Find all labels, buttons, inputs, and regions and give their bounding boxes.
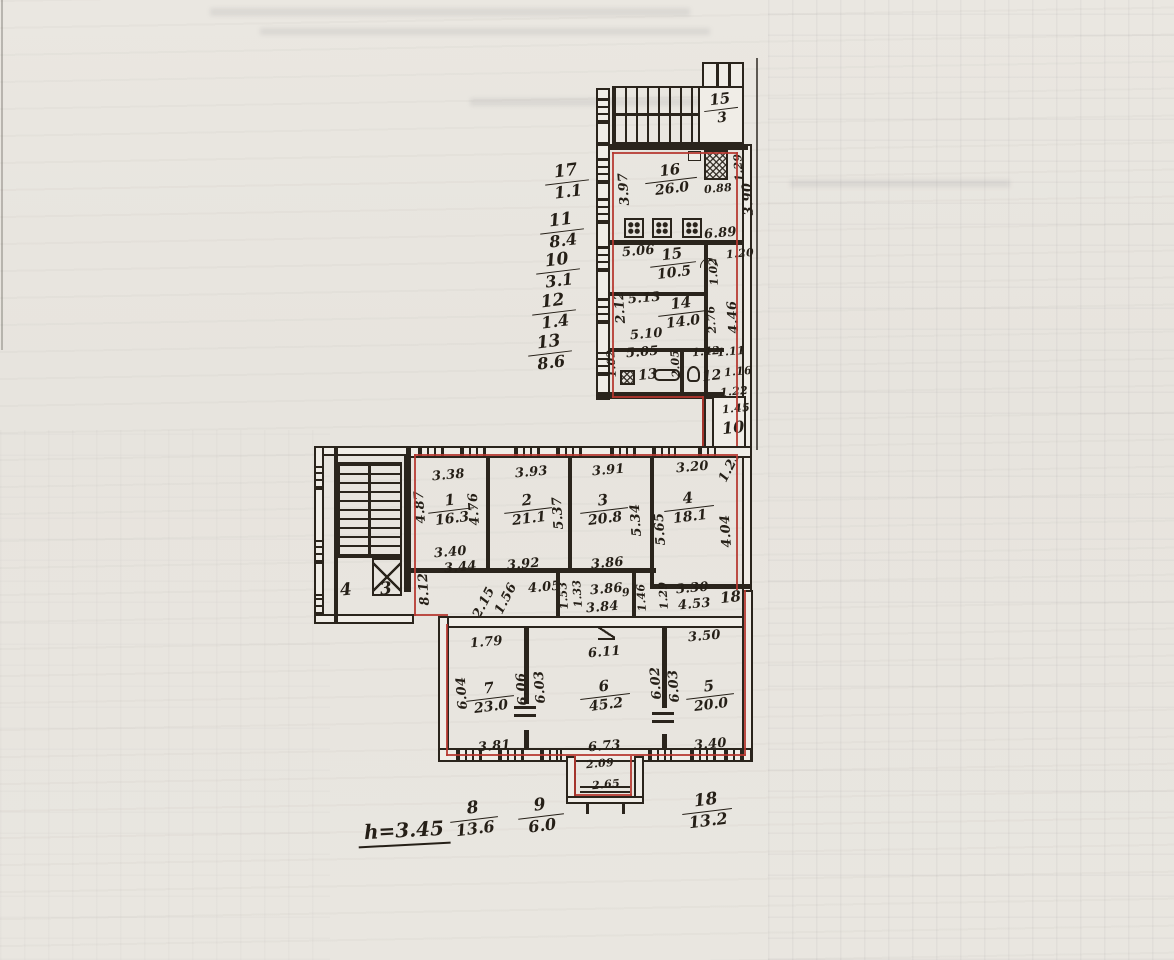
scanned-floor-plan-page: 15 3 16 26.0 3.97 3.90 0.88 1.29 6.89 5.… (0, 0, 1174, 960)
legend-item: 13 8.6 (526, 331, 574, 374)
legend-item: 12 1.4 (530, 290, 578, 333)
dim-label: 5.05 (625, 344, 659, 362)
room-6-label: 6 45.2 (578, 676, 632, 715)
legend-val: 8.6 (528, 351, 574, 374)
dim-label: 3.30 (675, 580, 709, 598)
height-note: h=3.45 (357, 816, 450, 849)
wall (568, 458, 572, 572)
dim-label: 3.91 (591, 462, 625, 480)
paper-texture (0, 0, 1174, 960)
kitchen-stove (624, 218, 644, 238)
ghost-ruling-left (0, 430, 330, 960)
dim-label: 2.76 (704, 305, 719, 334)
wall (486, 458, 490, 572)
window (596, 246, 610, 272)
red-boundary (612, 152, 738, 154)
dim-label: 4.46 (725, 300, 742, 334)
dim-label: 1.29 (731, 153, 746, 182)
room-3-label: 3 20.8 (578, 490, 630, 529)
ghost-ruling-right (768, 0, 1174, 960)
dim-label: 4.76 (466, 492, 483, 526)
dim-label: 1.56 (492, 581, 520, 617)
legend-val: 13.2 (682, 809, 734, 833)
legend-item: 17 1.1 (543, 160, 591, 203)
ghost-text-smudge (790, 180, 1010, 187)
dim-label: 5.65 (652, 512, 669, 546)
dim-label: 3.90 (740, 182, 757, 216)
dim-label: 8.12 (416, 572, 433, 606)
window (418, 446, 444, 458)
porch-step (622, 804, 625, 814)
legend-item: 10 3.1 (534, 249, 582, 292)
room-2-label: 2 21.1 (502, 490, 554, 529)
red-boundary (702, 396, 704, 452)
window (556, 446, 582, 458)
room-14-label: 14 14.0 (656, 293, 708, 332)
window (596, 198, 610, 224)
dim-label: 3.20 (675, 459, 709, 477)
dim-label: 2.12 (612, 290, 629, 324)
door-leaf (514, 714, 536, 717)
legend-val: 1.1 (545, 180, 591, 203)
red-boundary (446, 624, 448, 756)
red-boundary (574, 756, 576, 796)
dim-label: 6.03 (666, 669, 683, 703)
flue (704, 150, 728, 180)
dim-label: 6.11 (587, 644, 621, 662)
legend-val: 13.6 (450, 817, 500, 841)
red-boundary (446, 754, 746, 756)
red-boundary (612, 152, 614, 398)
dim-label: 3.93 (514, 464, 548, 482)
window (610, 446, 636, 458)
door-swing-symbol (598, 627, 615, 640)
stair-top-label: 15 3 (702, 90, 740, 127)
window (314, 466, 324, 490)
room-12-number: 12 (701, 367, 722, 385)
legend-val: 3.1 (536, 269, 582, 292)
room-16-label: 16 26.0 (643, 160, 699, 200)
red-boundary (612, 396, 704, 398)
dim-label: 3.86 (589, 581, 623, 599)
page-edge-line (1, 0, 3, 350)
legend-val: 1.4 (532, 310, 578, 333)
page-edge-line (756, 58, 758, 450)
door-leaf (652, 720, 674, 723)
window (596, 98, 610, 124)
red-boundary (630, 756, 632, 796)
dim-label: 1.79 (469, 634, 503, 652)
dim-label: 3.44 (443, 559, 477, 577)
dim-label: 1.33 (570, 579, 585, 608)
dim-label: 2.09 (585, 756, 614, 771)
window (460, 446, 486, 458)
dim-label: 3.40 (693, 736, 727, 754)
dim-label: 2.65 (591, 777, 620, 792)
room-4-label: 4 18.1 (662, 488, 716, 527)
room-9-number: 9 (621, 586, 630, 600)
porch-step (580, 791, 630, 793)
window (514, 446, 540, 458)
dim-label: 6.73 (587, 738, 621, 756)
dim-label: 3.97 (616, 172, 633, 206)
room-15-label: 15 10.5 (648, 244, 698, 283)
dim-label: 6.03 (532, 670, 549, 704)
red-boundary (576, 794, 632, 796)
toilet (687, 366, 700, 382)
porch-step (586, 804, 589, 814)
dim-label: 0.88 (703, 181, 732, 196)
dim-label: 3.92 (506, 556, 540, 574)
dim-label: 1.20 (725, 246, 754, 261)
legend-item: 11 8.4 (538, 209, 586, 252)
dim-label: 1.46 (634, 583, 649, 612)
legend-item: 9 6.0 (516, 794, 566, 837)
window (596, 158, 610, 184)
window (596, 298, 610, 324)
outer-wall (314, 614, 414, 624)
porch-wall (566, 796, 644, 804)
door-leaf (514, 706, 536, 709)
legend-item: 8 13.6 (448, 797, 500, 840)
outer-wall (316, 446, 408, 456)
legend-item: 18 13.2 (680, 789, 734, 832)
dim-label: 5.34 (628, 503, 645, 537)
door-leaf (652, 712, 674, 715)
stair-number-right: 3 (379, 578, 393, 599)
dim-label: 6.06 (514, 672, 531, 706)
dim-label: 3.38 (431, 467, 465, 485)
stair-stringer (368, 462, 371, 558)
kitchen-stove (682, 218, 702, 238)
red-boundary (736, 152, 738, 454)
dim-label: 2.05 (668, 349, 683, 378)
chimney-line (728, 62, 731, 88)
dim-label: 3.50 (687, 628, 721, 646)
chimney-line (716, 62, 719, 88)
room-13-number: 13 (637, 366, 658, 384)
dim-label: 6.02 (648, 666, 665, 700)
wall (524, 730, 529, 750)
dim-label: 3.84 (585, 599, 619, 617)
dim-label: 3.86 (590, 555, 624, 573)
dim-label: 5.37 (550, 496, 567, 530)
wall (556, 573, 560, 619)
dim-label: 1.22 (719, 384, 748, 399)
room-7-label: 7 23.0 (464, 678, 516, 717)
dim-label: 4.04 (718, 514, 735, 548)
dim-label: 3.81 (477, 738, 511, 756)
red-boundary (414, 454, 416, 616)
dim-label: 1.29 (656, 581, 671, 610)
red-boundary (414, 454, 736, 456)
ghost-text-smudge (260, 28, 710, 35)
window (698, 446, 716, 458)
dim-label: 1.11 (716, 344, 745, 359)
window (652, 446, 676, 458)
dim-label: 6.89 (703, 225, 737, 243)
corridor-18-number: 18 (719, 587, 742, 607)
washstand (620, 370, 635, 385)
window (314, 540, 324, 564)
kitchen-stove (652, 218, 672, 238)
room-10-number: 10 (721, 417, 745, 438)
dim-label: 1.02 (706, 257, 721, 286)
ghost-text-smudge (210, 8, 690, 16)
red-boundary (744, 590, 746, 756)
dim-label: 5.10 (629, 326, 663, 344)
red-boundary (736, 454, 738, 590)
window (314, 594, 324, 616)
outer-wall (438, 616, 752, 628)
stair-divider (614, 113, 698, 116)
chimney (702, 62, 744, 88)
dim-label: 4.53 (677, 596, 711, 614)
room-5-label: 5 20.0 (684, 676, 736, 715)
stair-number-left: 4 (339, 579, 353, 600)
wall (662, 734, 667, 750)
